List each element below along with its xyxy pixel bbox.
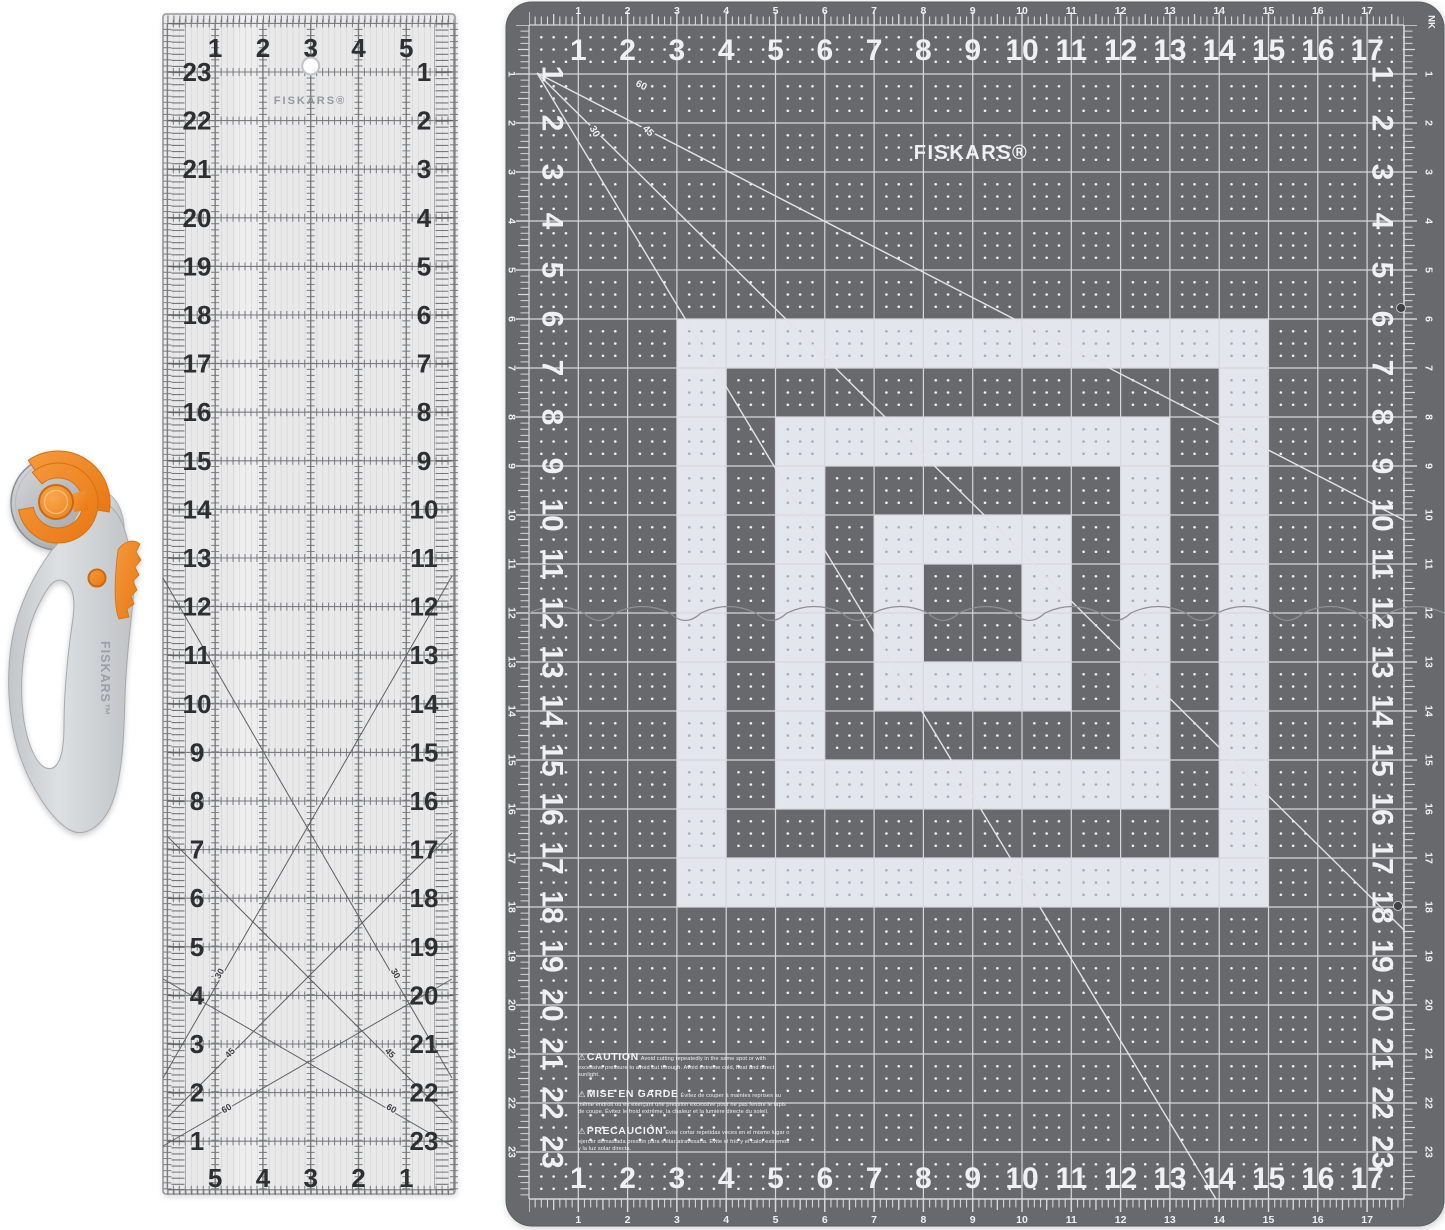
svg-text:8: 8 <box>190 786 204 816</box>
svg-text:2: 2 <box>1366 115 1399 132</box>
svg-text:21: 21 <box>505 1048 517 1060</box>
svg-text:17: 17 <box>1361 5 1373 17</box>
svg-text:2: 2 <box>536 115 569 132</box>
svg-text:23: 23 <box>410 1126 439 1156</box>
svg-text:17: 17 <box>505 852 517 864</box>
svg-text:6: 6 <box>822 5 828 17</box>
svg-text:9: 9 <box>536 458 569 475</box>
svg-text:4: 4 <box>723 1214 729 1226</box>
svg-text:7: 7 <box>417 349 431 379</box>
svg-text:20: 20 <box>536 988 569 1021</box>
svg-text:15: 15 <box>183 446 212 476</box>
svg-text:14: 14 <box>1203 1162 1237 1195</box>
svg-text:18: 18 <box>410 883 439 913</box>
svg-text:3: 3 <box>669 34 686 67</box>
svg-text:1: 1 <box>536 66 569 83</box>
svg-text:8: 8 <box>505 414 517 420</box>
svg-text:12: 12 <box>505 607 517 619</box>
svg-text:1: 1 <box>575 5 581 17</box>
svg-text:9: 9 <box>970 5 976 17</box>
svg-text:7: 7 <box>1366 360 1399 377</box>
svg-text:2: 2 <box>625 5 631 17</box>
cutter-handle <box>9 499 134 832</box>
svg-text:7: 7 <box>190 835 204 865</box>
svg-text:19: 19 <box>183 251 212 281</box>
svg-text:23: 23 <box>1366 1135 1399 1168</box>
svg-text:8: 8 <box>920 1214 926 1226</box>
svg-text:3: 3 <box>674 1214 680 1226</box>
svg-text:16: 16 <box>536 792 569 825</box>
svg-text:13: 13 <box>183 543 212 573</box>
svg-text:5: 5 <box>208 1163 222 1193</box>
svg-text:14: 14 <box>183 494 212 524</box>
svg-text:16: 16 <box>1312 5 1324 17</box>
svg-text:13: 13 <box>1153 1162 1186 1195</box>
svg-text:5: 5 <box>773 5 779 17</box>
corner-mark: NK <box>1426 15 1437 29</box>
svg-text:3: 3 <box>190 1029 204 1059</box>
svg-text:5: 5 <box>536 262 569 279</box>
svg-text:5: 5 <box>767 1162 784 1195</box>
svg-text:1: 1 <box>1422 71 1434 77</box>
svg-text:9: 9 <box>964 34 981 67</box>
svg-text:13: 13 <box>1366 645 1399 678</box>
svg-text:11: 11 <box>1066 5 1077 17</box>
svg-text:22: 22 <box>1366 1086 1399 1119</box>
svg-text:18: 18 <box>505 901 517 913</box>
svg-text:10: 10 <box>536 498 569 531</box>
svg-text:23: 23 <box>536 1135 569 1168</box>
svg-text:13: 13 <box>1422 656 1434 668</box>
svg-text:16: 16 <box>1301 1162 1334 1195</box>
svg-text:21: 21 <box>536 1037 569 1070</box>
svg-text:20: 20 <box>1366 988 1399 1021</box>
svg-text:5: 5 <box>399 33 413 63</box>
svg-text:2: 2 <box>505 120 517 126</box>
svg-text:12: 12 <box>1115 1214 1127 1226</box>
svg-text:14: 14 <box>1213 5 1225 17</box>
svg-text:10: 10 <box>1016 1214 1028 1226</box>
svg-text:15: 15 <box>1366 743 1399 776</box>
svg-text:7: 7 <box>505 365 517 371</box>
mat-brand-text: FISKARS® <box>914 142 1029 164</box>
svg-text:2: 2 <box>619 1162 636 1195</box>
svg-text:2: 2 <box>417 106 431 136</box>
svg-text:11: 11 <box>1066 1214 1077 1226</box>
svg-text:8: 8 <box>920 5 926 17</box>
svg-text:6: 6 <box>417 300 431 330</box>
svg-text:22: 22 <box>536 1086 569 1119</box>
svg-text:17: 17 <box>183 349 212 379</box>
svg-text:17: 17 <box>1361 1214 1373 1226</box>
svg-text:11: 11 <box>1055 1162 1087 1195</box>
svg-text:14: 14 <box>1203 34 1237 67</box>
svg-text:16: 16 <box>183 397 212 427</box>
svg-text:14: 14 <box>505 705 517 717</box>
svg-text:3: 3 <box>505 169 517 175</box>
caution-es: ⚠PRECAUCIÓNEvite cortar repetidas veces … <box>578 1125 792 1153</box>
svg-text:11: 11 <box>1422 558 1434 569</box>
svg-text:12: 12 <box>1422 607 1434 619</box>
svg-text:1: 1 <box>505 71 517 77</box>
rotary-cutter: FISKARS™ <box>0 430 170 850</box>
ruler-brand-text: FISKARS® <box>274 95 346 107</box>
svg-text:3: 3 <box>669 1162 686 1195</box>
svg-text:15: 15 <box>1263 5 1275 17</box>
svg-text:19: 19 <box>505 950 517 962</box>
blade-release-button <box>89 570 106 587</box>
caution-en: ⚠CAUTIONAvoid cutting repeatedly in the … <box>578 1051 792 1079</box>
svg-text:6: 6 <box>816 1162 833 1195</box>
svg-text:19: 19 <box>536 939 569 972</box>
svg-text:8: 8 <box>915 34 932 67</box>
svg-text:22: 22 <box>183 106 212 136</box>
svg-text:11: 11 <box>536 548 569 580</box>
svg-text:10: 10 <box>1016 5 1028 17</box>
svg-text:9: 9 <box>970 1214 976 1226</box>
svg-text:9: 9 <box>1366 458 1399 475</box>
ruler-hanging-hole <box>302 58 319 75</box>
svg-text:3: 3 <box>303 1163 317 1193</box>
svg-text:8: 8 <box>915 1162 932 1195</box>
svg-text:10: 10 <box>1005 1162 1038 1195</box>
svg-text:17: 17 <box>1422 852 1434 864</box>
svg-text:4: 4 <box>718 34 735 67</box>
svg-text:4: 4 <box>1366 213 1399 230</box>
svg-text:21: 21 <box>410 1029 439 1059</box>
blade-hub <box>39 485 73 519</box>
svg-text:4: 4 <box>1422 218 1434 224</box>
svg-text:15: 15 <box>1263 1214 1275 1226</box>
svg-text:8: 8 <box>536 409 569 426</box>
svg-text:15: 15 <box>1252 1162 1285 1195</box>
svg-text:2: 2 <box>190 1078 204 1108</box>
svg-text:18: 18 <box>1366 890 1399 923</box>
svg-text:15: 15 <box>536 743 569 776</box>
svg-text:12: 12 <box>1115 5 1127 17</box>
svg-text:14: 14 <box>1213 1214 1225 1226</box>
warning-icon: ⚠ <box>578 1052 586 1062</box>
svg-text:10: 10 <box>505 509 517 521</box>
quilting-ruler: 3030454560601234554321232221201918171615… <box>150 0 470 1230</box>
svg-text:2: 2 <box>1422 120 1434 126</box>
svg-text:10: 10 <box>1366 498 1399 531</box>
svg-text:3: 3 <box>536 164 569 181</box>
svg-text:13: 13 <box>1164 5 1176 17</box>
svg-text:9: 9 <box>505 463 517 469</box>
svg-text:2: 2 <box>619 34 636 67</box>
svg-text:2: 2 <box>625 1214 631 1226</box>
svg-text:5: 5 <box>773 1214 779 1226</box>
svg-text:1: 1 <box>190 1126 204 1156</box>
svg-text:12: 12 <box>1104 34 1137 67</box>
svg-text:18: 18 <box>183 300 212 330</box>
svg-text:20: 20 <box>505 999 517 1011</box>
svg-text:8: 8 <box>1366 409 1399 426</box>
svg-text:16: 16 <box>410 786 439 816</box>
svg-text:23: 23 <box>505 1146 517 1158</box>
svg-text:5: 5 <box>190 932 204 962</box>
svg-text:4: 4 <box>505 218 517 224</box>
svg-text:1: 1 <box>417 57 431 87</box>
svg-text:13: 13 <box>410 640 439 670</box>
svg-text:2: 2 <box>351 1163 365 1193</box>
product-photo: FISKARS™ 3030454560601234554321232221201… <box>0 0 1445 1230</box>
svg-text:7: 7 <box>871 1214 877 1226</box>
svg-text:13: 13 <box>536 645 569 678</box>
svg-text:10: 10 <box>1422 509 1434 521</box>
svg-text:11: 11 <box>1055 34 1087 67</box>
svg-text:3: 3 <box>1366 164 1399 181</box>
svg-text:12: 12 <box>410 592 439 622</box>
svg-text:13: 13 <box>1153 34 1186 67</box>
svg-text:11: 11 <box>505 558 517 569</box>
warning-icon: ⚠ <box>578 1126 586 1136</box>
svg-text:12: 12 <box>1366 596 1399 629</box>
svg-text:16: 16 <box>1366 792 1399 825</box>
svg-text:4: 4 <box>256 1163 271 1193</box>
svg-text:4: 4 <box>536 213 569 230</box>
svg-text:4: 4 <box>718 1162 735 1195</box>
svg-text:11: 11 <box>1366 548 1399 580</box>
svg-text:18: 18 <box>1422 901 1434 913</box>
svg-text:21: 21 <box>1366 1037 1399 1070</box>
svg-text:13: 13 <box>505 656 517 668</box>
svg-text:8: 8 <box>417 397 431 427</box>
svg-text:17: 17 <box>1350 34 1383 67</box>
svg-text:6: 6 <box>822 1214 828 1226</box>
svg-text:1: 1 <box>399 1163 413 1193</box>
svg-text:22: 22 <box>505 1097 517 1109</box>
svg-text:9: 9 <box>1422 463 1434 469</box>
svg-text:22: 22 <box>1422 1097 1434 1109</box>
svg-text:12: 12 <box>1104 1162 1137 1195</box>
svg-text:5: 5 <box>767 34 784 67</box>
svg-text:6: 6 <box>190 883 204 913</box>
svg-text:21: 21 <box>183 154 212 184</box>
svg-text:6: 6 <box>1422 316 1434 322</box>
svg-text:16: 16 <box>1312 1214 1324 1226</box>
svg-text:19: 19 <box>410 932 439 962</box>
svg-text:23: 23 <box>183 57 212 87</box>
svg-text:21: 21 <box>1422 1048 1434 1060</box>
safety-lever <box>115 541 141 619</box>
svg-text:4: 4 <box>190 980 205 1010</box>
svg-text:10: 10 <box>183 689 212 719</box>
svg-text:11: 11 <box>183 640 211 670</box>
svg-text:3: 3 <box>417 154 431 184</box>
svg-text:17: 17 <box>1366 841 1399 874</box>
svg-text:20: 20 <box>1422 999 1434 1011</box>
svg-text:5: 5 <box>505 267 517 273</box>
svg-text:22: 22 <box>410 1078 439 1108</box>
cutter-brand-text: FISKARS™ <box>98 641 112 716</box>
svg-text:19: 19 <box>1422 950 1434 962</box>
svg-text:12: 12 <box>183 592 212 622</box>
svg-text:4: 4 <box>351 33 366 63</box>
mat-caution-block: ⚠CAUTIONAvoid cutting repeatedly in the … <box>578 1051 792 1163</box>
svg-text:15: 15 <box>410 737 439 767</box>
svg-text:17: 17 <box>536 841 569 874</box>
svg-text:7: 7 <box>866 34 883 67</box>
svg-text:7: 7 <box>1422 365 1434 371</box>
svg-text:3: 3 <box>1422 169 1434 175</box>
svg-text:6: 6 <box>536 311 569 328</box>
svg-text:14: 14 <box>1366 694 1399 728</box>
svg-text:17: 17 <box>410 835 439 865</box>
svg-text:1: 1 <box>575 1214 581 1226</box>
svg-text:7: 7 <box>866 1162 883 1195</box>
svg-text:5: 5 <box>1366 262 1399 279</box>
svg-text:19: 19 <box>1366 939 1399 972</box>
svg-text:13: 13 <box>1164 1214 1176 1226</box>
svg-text:15: 15 <box>1252 34 1285 67</box>
svg-text:9: 9 <box>190 737 204 767</box>
svg-text:15: 15 <box>505 754 517 766</box>
svg-text:12: 12 <box>536 596 569 629</box>
svg-text:16: 16 <box>1422 803 1434 815</box>
svg-text:6: 6 <box>505 316 517 322</box>
svg-text:1: 1 <box>1366 66 1399 83</box>
svg-text:14: 14 <box>1422 705 1434 717</box>
svg-text:3: 3 <box>674 5 680 17</box>
svg-text:18: 18 <box>536 890 569 923</box>
svg-text:4: 4 <box>417 203 432 233</box>
svg-text:10: 10 <box>1005 34 1038 67</box>
svg-text:9: 9 <box>964 1162 981 1195</box>
svg-text:6: 6 <box>816 34 833 67</box>
svg-text:6: 6 <box>1366 311 1399 328</box>
svg-text:4: 4 <box>723 5 729 17</box>
svg-text:8: 8 <box>1422 414 1434 420</box>
svg-text:20: 20 <box>183 203 212 233</box>
svg-text:23: 23 <box>1422 1146 1434 1158</box>
svg-text:16: 16 <box>1301 34 1334 67</box>
svg-text:14: 14 <box>410 689 439 719</box>
svg-text:9: 9 <box>417 446 431 476</box>
svg-text:1: 1 <box>570 34 587 67</box>
svg-text:7: 7 <box>536 360 569 377</box>
cutting-mat: 604530FISKARS®11223344556677889910101111… <box>495 0 1445 1230</box>
svg-text:5: 5 <box>1422 267 1434 273</box>
svg-text:7: 7 <box>871 5 877 17</box>
svg-text:15: 15 <box>1422 754 1434 766</box>
svg-text:16: 16 <box>505 803 517 815</box>
svg-text:14: 14 <box>536 694 569 728</box>
svg-text:20: 20 <box>410 980 439 1010</box>
warning-icon: ⚠ <box>578 1089 586 1099</box>
svg-text:10: 10 <box>410 494 439 524</box>
svg-text:11: 11 <box>410 543 438 573</box>
caution-fr: ⚠MISE EN GARDEÉvitez de couper à maintes… <box>578 1088 792 1116</box>
svg-text:2: 2 <box>256 33 270 63</box>
svg-text:5: 5 <box>417 251 431 281</box>
svg-text:1: 1 <box>570 1162 587 1195</box>
